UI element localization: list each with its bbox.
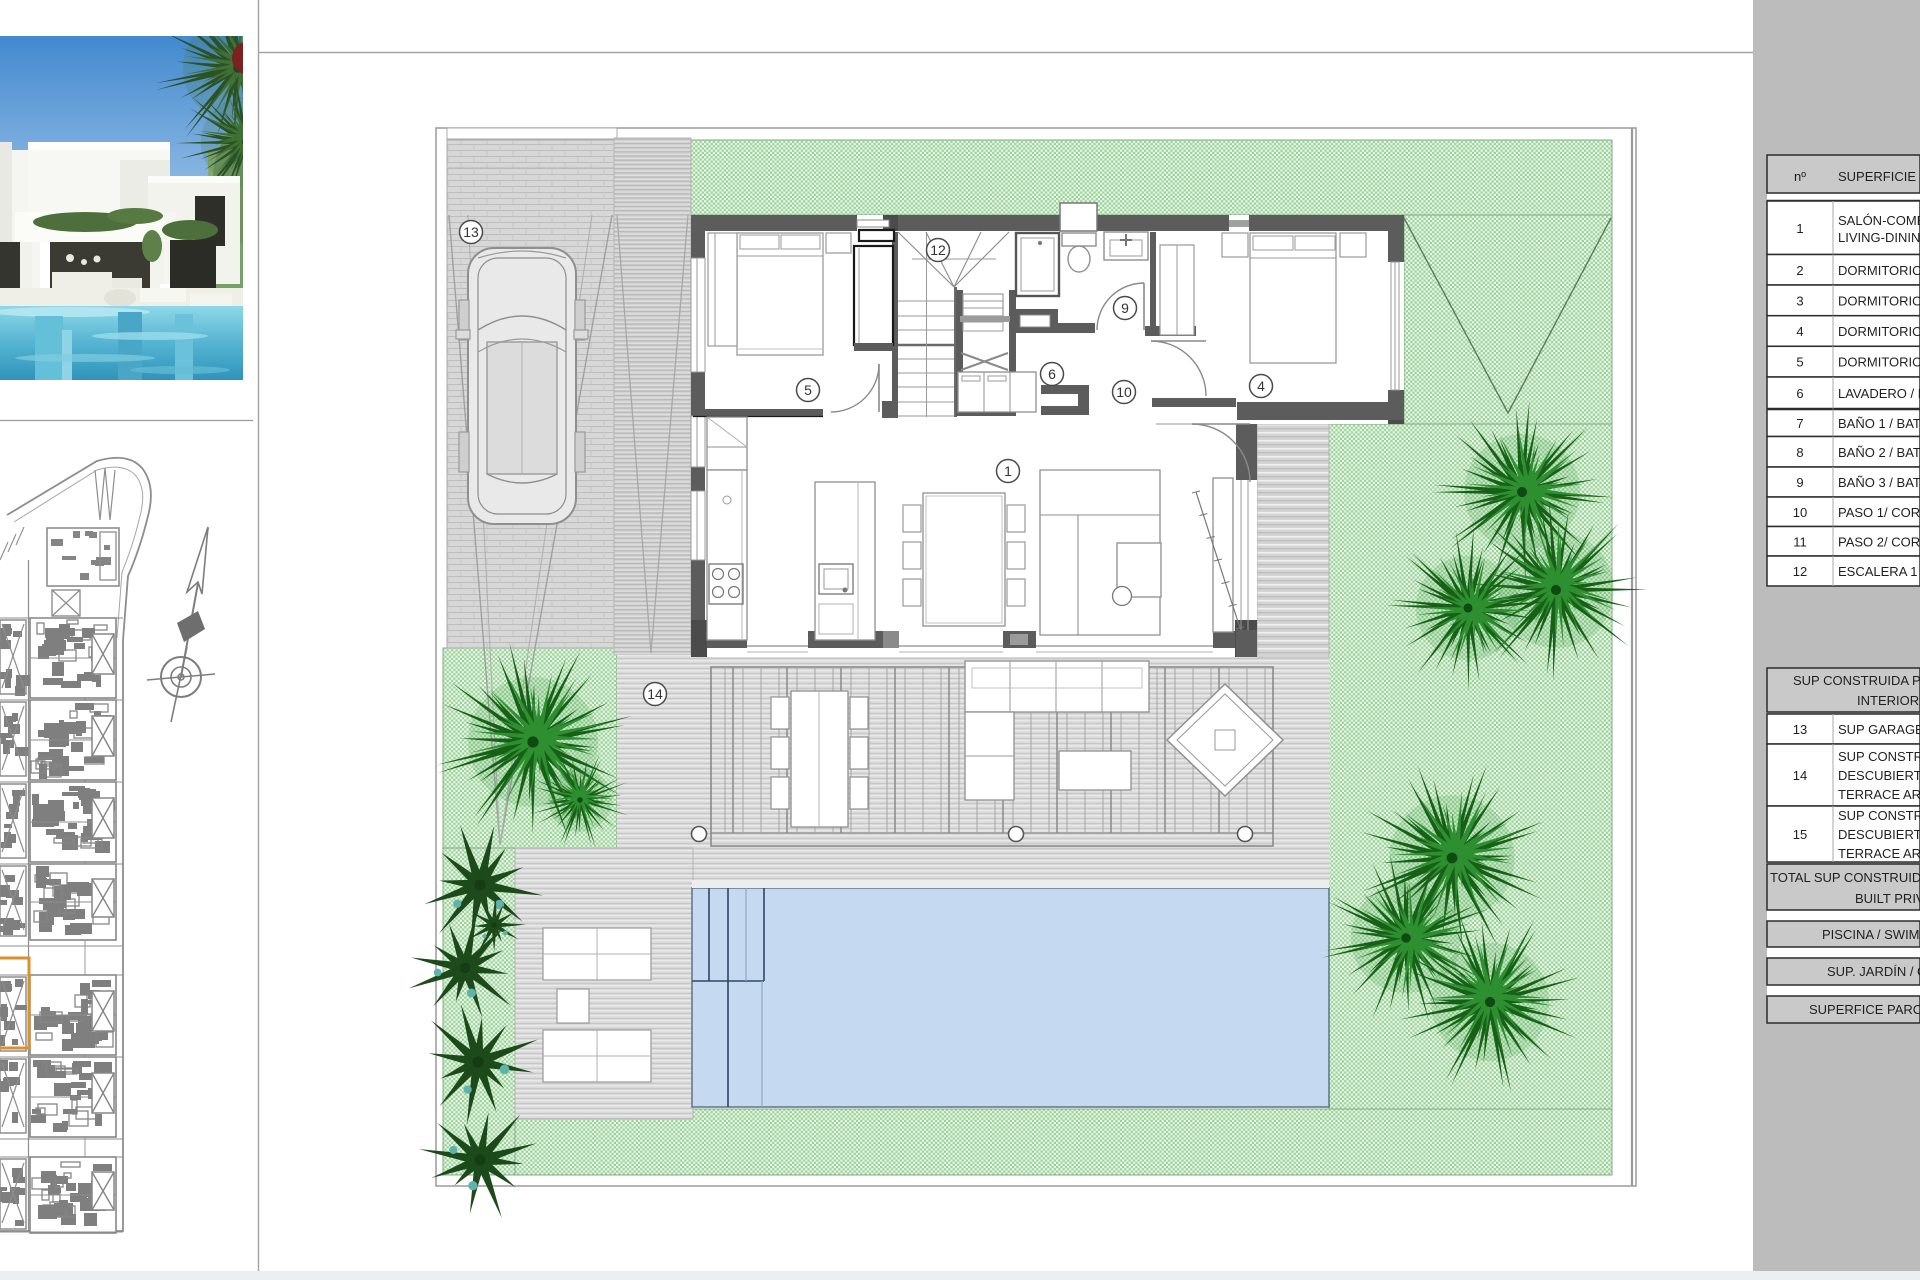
svg-text:SUP CONSTRUIDA: SUP CONSTRUIDA <box>1838 749 1920 764</box>
svg-text:SUPERFICIE ÚTIL: SUPERFICIE ÚTIL <box>1838 169 1920 184</box>
svg-text:TERRACE AREA: TERRACE AREA <box>1838 846 1920 861</box>
svg-text:10: 10 <box>1116 384 1132 400</box>
svg-text:2: 2 <box>1796 263 1803 278</box>
svg-text:DORMITORIO 1 / BED: DORMITORIO 1 / BED <box>1838 263 1920 278</box>
svg-text:DORMITORIO 3 / BED: DORMITORIO 3 / BED <box>1838 324 1920 339</box>
svg-text:DORMITORIO 4 / BED: DORMITORIO 4 / BED <box>1838 355 1920 370</box>
svg-text:7: 7 <box>1796 416 1803 431</box>
svg-text:14: 14 <box>647 686 663 702</box>
svg-text:SUP. JARDÍN / GARD: SUP. JARDÍN / GARD <box>1827 964 1920 979</box>
svg-text:BUILT PRIVATE: BUILT PRIVATE <box>1855 891 1920 906</box>
svg-text:TERRACE AREA: TERRACE AREA <box>1838 787 1920 802</box>
svg-text:6: 6 <box>1796 386 1803 401</box>
svg-text:DESCUBIERTA / UN: DESCUBIERTA / UN <box>1838 768 1920 783</box>
svg-text:5: 5 <box>1796 355 1803 370</box>
svg-text:12: 12 <box>1793 564 1807 579</box>
svg-text:SUP CONSTRUIDA P: SUP CONSTRUIDA P <box>1793 673 1920 688</box>
svg-text:LIVING-DINING: LIVING-DINING <box>1838 230 1920 245</box>
svg-text:LAVADERO / LAUND: LAVADERO / LAUND <box>1838 386 1920 401</box>
svg-text:1: 1 <box>1004 463 1012 479</box>
svg-text:PISCINA / SWIMMING: PISCINA / SWIMMING <box>1822 927 1920 942</box>
svg-text:BAÑO 1 / BATHROO: BAÑO 1 / BATHROO <box>1838 416 1920 431</box>
svg-text:9: 9 <box>1121 300 1129 316</box>
svg-text:8: 8 <box>1796 445 1803 460</box>
svg-text:SUP CONSTRUIDA: SUP CONSTRUIDA <box>1838 808 1920 823</box>
svg-text:DORMITORIO 2 / BED: DORMITORIO 2 / BED <box>1838 293 1920 308</box>
svg-text:PASO 1/ CORRIDOR: PASO 1/ CORRIDOR <box>1838 505 1920 520</box>
svg-text:9: 9 <box>1796 475 1803 490</box>
svg-text:nº: nº <box>1794 169 1806 184</box>
svg-text:1: 1 <box>1796 221 1803 236</box>
svg-text:10: 10 <box>1793 505 1807 520</box>
svg-text:4: 4 <box>1257 378 1265 394</box>
svg-text:15: 15 <box>1793 827 1807 842</box>
svg-text:13: 13 <box>463 224 479 240</box>
svg-text:TOTAL SUP CONSTRUIDA: TOTAL SUP CONSTRUIDA <box>1770 870 1920 885</box>
svg-text:PASO 2/ CORRIDOR: PASO 2/ CORRIDOR <box>1838 534 1920 549</box>
svg-text:5: 5 <box>804 382 812 398</box>
svg-text:ESCALERA 1 / STAIR: ESCALERA 1 / STAIR <box>1838 564 1920 579</box>
svg-text:SALÓN-COMEDOR: SALÓN-COMEDOR <box>1838 213 1920 228</box>
svg-text:12: 12 <box>930 242 946 258</box>
svg-text:3: 3 <box>1796 293 1803 308</box>
svg-text:BAÑO 3 / BATHROO: BAÑO 3 / BATHROO <box>1838 475 1920 490</box>
svg-text:4: 4 <box>1796 324 1803 339</box>
svg-text:11: 11 <box>1793 534 1807 549</box>
svg-text:BAÑO 2 / BATHROO: BAÑO 2 / BATHROO <box>1838 445 1920 460</box>
svg-text:14: 14 <box>1793 768 1807 783</box>
svg-text:DESCUBIERTA / UN: DESCUBIERTA / UN <box>1838 827 1920 842</box>
svg-text:INTERIOR: INTERIOR <box>1857 693 1919 708</box>
svg-text:6: 6 <box>1048 366 1056 382</box>
svg-text:13: 13 <box>1793 722 1807 737</box>
svg-text:SUP GARAGE / GAR: SUP GARAGE / GAR <box>1838 722 1920 737</box>
svg-text:SUPERFICE PARCELA: SUPERFICE PARCELA <box>1809 1002 1920 1017</box>
